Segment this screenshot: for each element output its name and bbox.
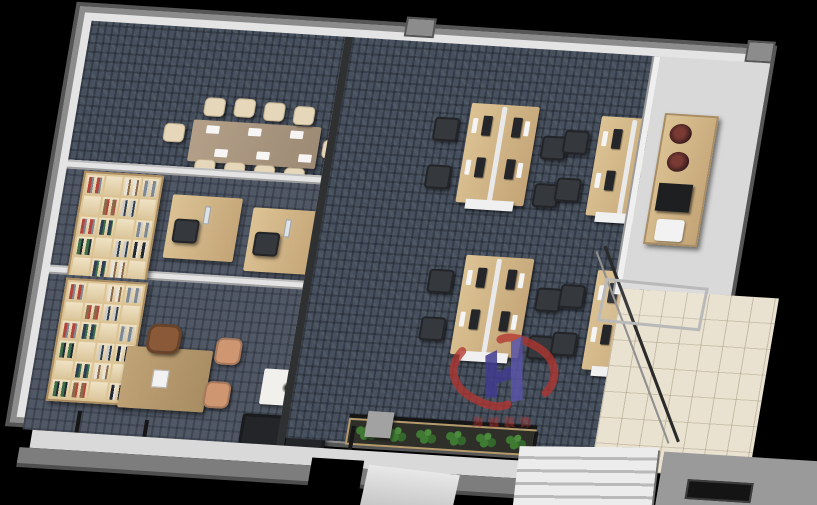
monitor: [504, 159, 516, 179]
keyboard: [471, 118, 479, 133]
shelf-cell: [81, 195, 101, 215]
stair-steps: [510, 446, 659, 505]
book-spines: [81, 324, 96, 339]
monitor: [468, 309, 480, 329]
shelf-cell: [89, 258, 109, 278]
shelf-cell: [126, 261, 146, 281]
shelf-cell: [53, 360, 73, 379]
shelf-cell: [133, 220, 153, 240]
office-chair: [418, 316, 447, 341]
monitor: [604, 170, 616, 190]
book-spines: [85, 305, 100, 320]
shelf-cell: [111, 239, 131, 259]
office-chair: [431, 117, 460, 142]
meeting-room: [68, 21, 345, 176]
shelf-cell: [101, 304, 121, 323]
keyboard: [510, 315, 518, 330]
book-spines: [126, 288, 141, 303]
placemat: [256, 151, 270, 160]
guest-chair: [213, 337, 243, 365]
shelf-cell: [96, 217, 116, 237]
book-spines: [94, 364, 109, 379]
desk-cabinet: [464, 199, 514, 212]
book-spines: [110, 262, 125, 278]
book-spines: [142, 180, 157, 196]
shelf-cell: [71, 257, 91, 277]
book-spines: [103, 306, 118, 321]
shelf-cell: [95, 343, 115, 362]
office-chair: [252, 231, 281, 256]
meeting-chair: [292, 106, 316, 126]
book-spines: [97, 345, 112, 360]
office-chair: [561, 130, 590, 155]
shelf-cell: [57, 340, 77, 359]
book-spines: [62, 323, 77, 338]
shelf-cell: [98, 323, 118, 342]
book-spines: [119, 327, 134, 342]
facade-cut-gap: [304, 457, 364, 505]
meeting-chair: [262, 102, 286, 122]
shelf-cell: [100, 197, 120, 217]
office-chair: [426, 268, 455, 293]
wall-column: [406, 19, 435, 36]
book-spines: [120, 200, 135, 216]
keyboard: [590, 327, 598, 342]
desk-bench: [450, 255, 535, 358]
shrub: [441, 428, 468, 449]
shelf-cell: [86, 283, 106, 302]
shelf-cell: [120, 305, 140, 324]
shelf-cell: [63, 301, 83, 320]
keyboard: [466, 270, 474, 285]
meeting-chair: [233, 98, 257, 118]
book-spines: [124, 179, 139, 195]
office-chair: [549, 331, 578, 356]
keyboard: [594, 173, 602, 188]
wall-column: [747, 42, 774, 61]
monitor: [600, 324, 612, 344]
shelf-cell: [88, 382, 108, 401]
placemat: [298, 154, 312, 163]
keyboard: [601, 131, 609, 146]
shelf-cell: [78, 216, 98, 236]
keyboard: [464, 160, 472, 175]
shelf-cell: [69, 381, 89, 400]
shelf-cell: [85, 175, 105, 195]
book-spines: [132, 242, 147, 258]
shelf-cell: [118, 198, 138, 218]
book-spines: [80, 218, 95, 234]
executive-chair: [144, 323, 183, 355]
meeting-chair: [203, 97, 227, 117]
microwave-black: [655, 183, 694, 213]
shelf-cell: [82, 303, 102, 322]
office-chair: [171, 218, 200, 243]
placemat: [290, 130, 304, 139]
book-spines: [102, 199, 117, 215]
shelf-cell: [93, 238, 113, 258]
placemat: [206, 125, 220, 134]
book-spines: [113, 241, 128, 257]
office-chair: [558, 284, 587, 309]
placemat: [214, 149, 228, 158]
shelf-cell: [108, 260, 128, 280]
shelf-cell: [67, 282, 87, 301]
book-spines: [71, 383, 86, 398]
book-spines: [107, 286, 122, 301]
shelf-cell: [103, 176, 123, 196]
entry-cabinet: [364, 411, 394, 438]
monitor: [511, 117, 523, 137]
keyboard: [523, 121, 531, 136]
placemat: [248, 128, 262, 137]
monitor: [474, 157, 486, 177]
meeting-chair: [162, 123, 186, 143]
book-spines: [52, 381, 67, 396]
office-floorplan: [10, 6, 773, 466]
shrub: [411, 426, 438, 447]
office-chair: [553, 177, 582, 202]
shelf-cell: [115, 218, 135, 238]
shelf-cell: [91, 362, 111, 381]
shelf-cell: [60, 321, 80, 340]
keyboard: [516, 163, 524, 178]
monitor: [498, 311, 510, 331]
office-chair: [423, 164, 452, 189]
shrub: [471, 430, 498, 451]
guest-chair: [202, 381, 232, 409]
shelf-cell: [79, 322, 99, 341]
book-spines: [98, 219, 113, 235]
shelf-cell: [124, 285, 144, 304]
render-canvas: 海诚装饰: [0, 0, 817, 505]
shelf-cell: [117, 324, 137, 343]
monitor: [505, 269, 517, 289]
monitor: [481, 116, 493, 136]
shelf-cell: [72, 361, 92, 380]
book-spines: [87, 177, 102, 193]
monitor: [475, 268, 487, 288]
shelf-cell: [74, 237, 94, 257]
book-spines: [76, 239, 91, 255]
desk-cabinet: [459, 351, 509, 364]
book-spines: [59, 342, 74, 357]
dispenser-white: [654, 219, 686, 243]
shelf-cell: [105, 284, 125, 303]
shelf-cell: [122, 177, 142, 197]
shelf-cell: [50, 379, 70, 398]
lower-window-opening: [685, 479, 754, 503]
shelf-cell: [130, 240, 150, 260]
book-spines: [135, 222, 150, 238]
keyboard: [459, 312, 467, 327]
shelf-cell: [140, 178, 160, 198]
keyboard: [517, 273, 525, 288]
monitor: [151, 369, 170, 388]
desk-bench: [455, 103, 540, 206]
monitor: [611, 129, 623, 149]
shelf-cell: [76, 342, 96, 361]
shelf-cell: [137, 199, 157, 219]
book-spines: [69, 284, 84, 299]
book-spines: [91, 261, 106, 277]
book-spines: [75, 363, 90, 378]
